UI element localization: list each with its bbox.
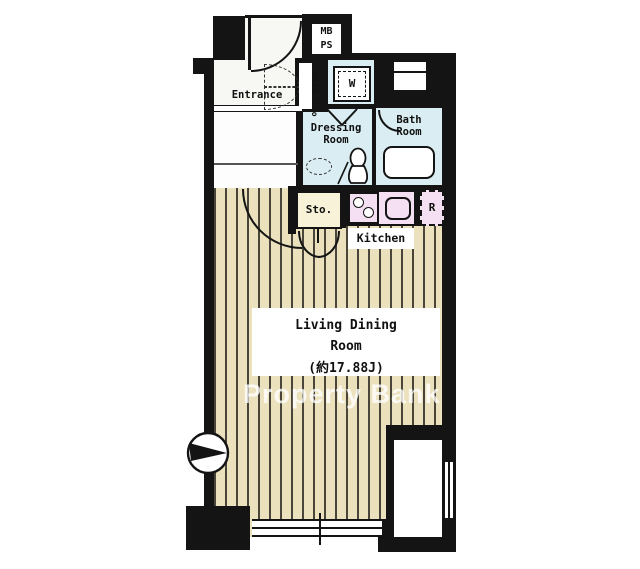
storage-label: Sto.	[298, 204, 340, 217]
wall-balcony-top	[386, 425, 446, 440]
wall-dressing-bath	[372, 106, 376, 188]
living-window	[252, 519, 382, 537]
meter-box-label-mb: MB	[312, 26, 341, 38]
storage-door-center-line	[317, 229, 319, 243]
wall-bottom-left-block	[186, 506, 250, 550]
shoe-closet-label: Shoe Clo	[310, 71, 319, 118]
kitchen-counter	[346, 190, 416, 226]
balcony-area	[394, 440, 442, 537]
washbasin-icon	[306, 158, 332, 175]
balcony-window	[443, 462, 455, 518]
toilet-icon	[336, 146, 370, 186]
meter-box: MB PS	[310, 22, 343, 56]
kitchen-label: Kitchen	[348, 232, 414, 245]
compass-north-icon	[183, 428, 233, 478]
meter-box-label-ps: PS	[312, 40, 341, 52]
storage-box: Sto.	[296, 191, 342, 229]
kitchen-sink-icon	[385, 197, 411, 220]
wall-balcony-bottom	[386, 537, 456, 552]
floor-plan: MB PS Shoe Clo W Dressing Room Bath Room…	[0, 0, 640, 569]
kitchen-label-band: Kitchen	[348, 228, 414, 249]
hallway-line	[214, 163, 298, 165]
pipe-space-divider	[394, 71, 426, 73]
watermark: Property Bank	[243, 379, 441, 410]
living-window-center-tick	[319, 513, 321, 545]
shoe-closet: Shoe Clo	[299, 63, 312, 109]
stove-icon	[348, 192, 379, 224]
wall-hall-dressing	[296, 106, 303, 192]
pipe-space-box	[392, 60, 428, 92]
bathtub-icon	[383, 146, 435, 179]
entrance-step	[214, 105, 302, 112]
dressing-room-label: Dressing Room	[300, 122, 372, 146]
wall-entrance-top	[245, 15, 302, 18]
wall-top-left-pillar	[213, 16, 245, 60]
entrance-label: Entrance	[214, 89, 300, 101]
refrigerator-box: R	[420, 190, 444, 226]
refrigerator-label: R	[422, 202, 442, 215]
washer-box: W	[333, 66, 371, 102]
washer-label: W	[335, 78, 369, 91]
hallway	[214, 110, 302, 188]
bath-room-label: Bath Room	[380, 114, 438, 138]
living-dining-label: Living Dining Room (約17.88J)	[252, 315, 440, 379]
